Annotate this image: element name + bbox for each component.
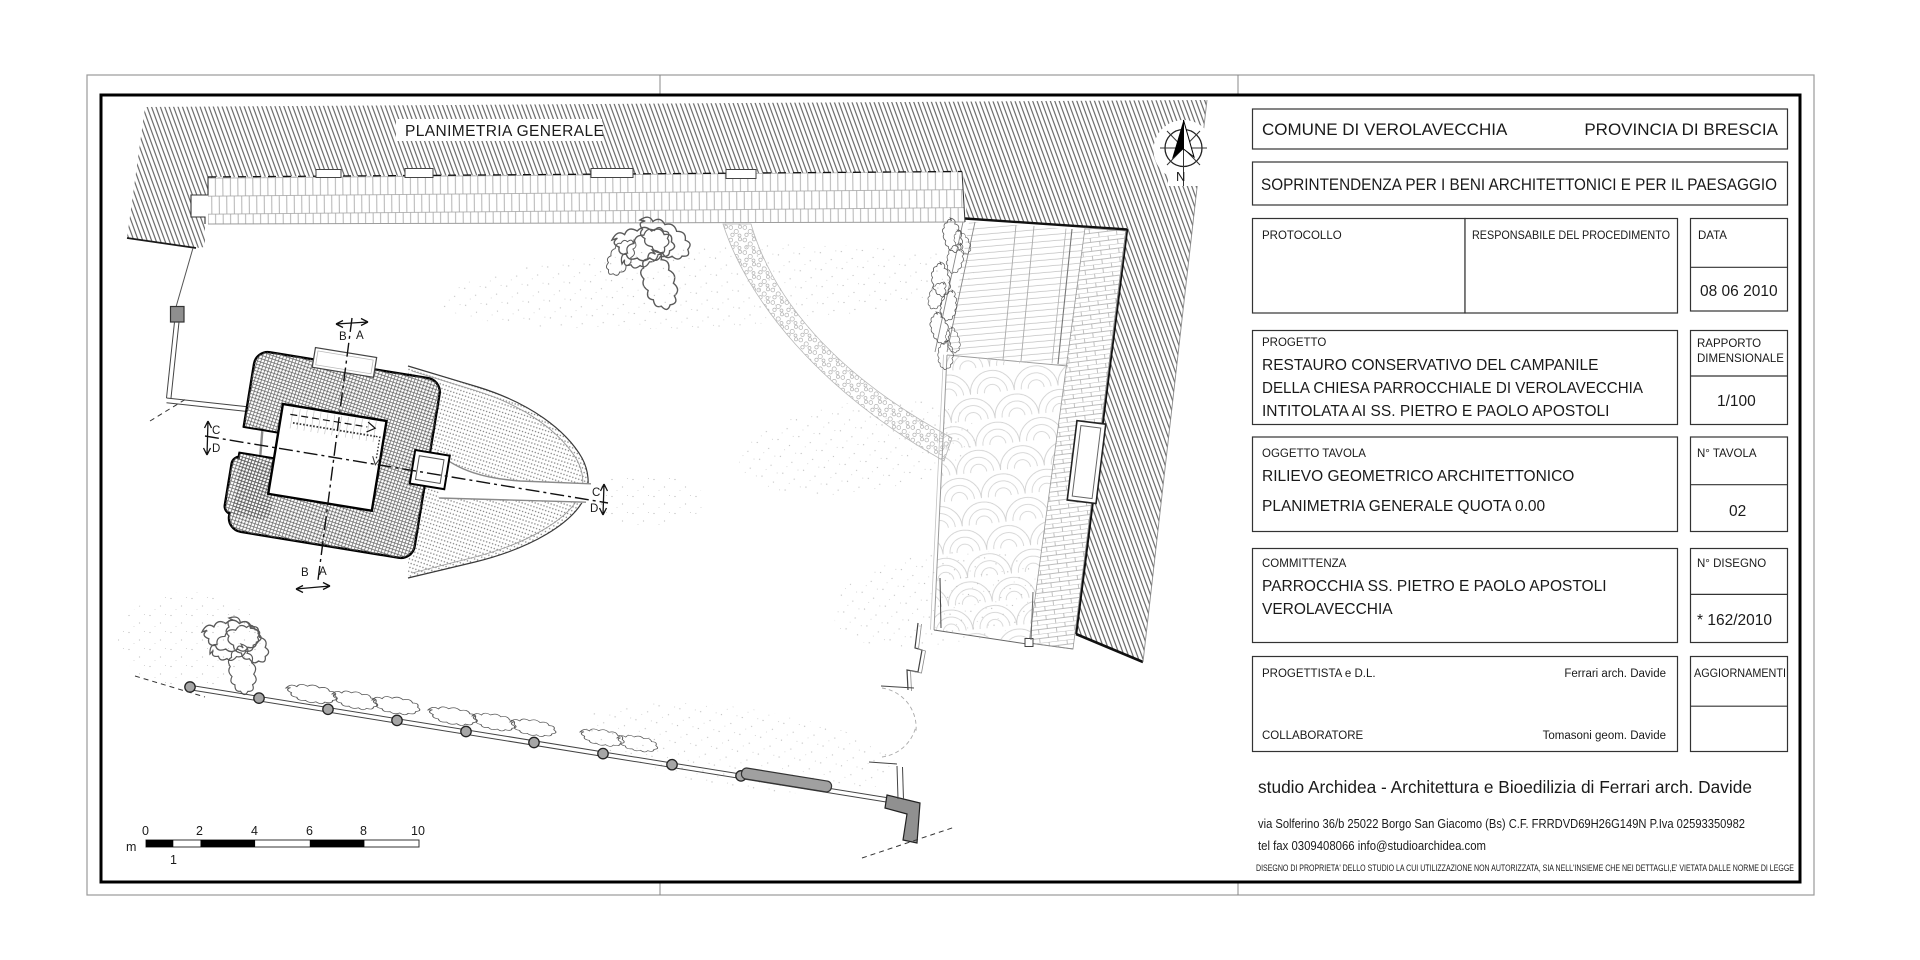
svg-text:4: 4 [251,824,258,838]
svg-text:DATA: DATA [1698,230,1727,242]
svg-text:D: D [590,503,598,515]
svg-text:A: A [356,330,364,342]
svg-text:2: 2 [196,824,203,838]
svg-text:studio Archidea - Architettura: studio Archidea - Architettura e Bioedil… [1258,777,1752,797]
svg-text:SOPRINTENDENZA PER I BENI ARCH: SOPRINTENDENZA PER I BENI ARCHITETTONICI… [1261,175,1777,194]
svg-text:PROGETTO: PROGETTO [1262,337,1326,349]
svg-text:08 06 2010: 08 06 2010 [1700,283,1778,300]
svg-text:COLLABORATORE: COLLABORATORE [1262,730,1364,742]
svg-text:N: N [1176,169,1185,184]
svg-text:tel fax 0309408066 info@stu: tel fax 0309408066 info@studioarchidea.c… [1258,839,1486,853]
svg-text:PROTOCOLLO: PROTOCOLLO [1262,230,1342,242]
svg-text:8: 8 [360,824,367,838]
svg-text:COMMITTENZA: COMMITTENZA [1262,558,1347,570]
svg-text:C: C [592,487,600,499]
svg-text:RESTAURO CONSERVATIVO DEL CAMP: RESTAURO CONSERVATIVO DEL CAMPANILE [1262,357,1598,374]
svg-text:VEROLAVECCHIA: VEROLAVECCHIA [1262,601,1393,618]
svg-text:Tomasoni geom. Davide: Tomasoni geom. Davide [1543,730,1666,742]
svg-text:D: D [212,443,220,455]
svg-text:DIMENSIONALE: DIMENSIONALE [1697,353,1784,365]
svg-text:* 162/2010: * 162/2010 [1697,612,1772,629]
svg-text:0: 0 [142,824,149,838]
svg-text:B: B [301,567,309,579]
svg-text:Ferrari arch. Davide: Ferrari arch. Davide [1564,668,1666,680]
svg-text:1: 1 [170,853,177,867]
svg-text:PROVINCIA DI BRESCIA: PROVINCIA DI BRESCIA [1584,120,1778,139]
svg-text:m: m [126,840,136,854]
svg-text:N° DISEGNO: N° DISEGNO [1697,558,1766,570]
svg-text:RAPPORTO: RAPPORTO [1697,338,1761,350]
svg-text:PLANIMETRIA GENERALE: PLANIMETRIA GENERALE [405,123,604,140]
svg-text:AGGIORNAMENTI: AGGIORNAMENTI [1694,668,1786,680]
svg-text:DISEGNO DI PROPRIETA' DELLO ST: DISEGNO DI PROPRIETA' DELLO STUDIO LA CU… [1256,863,1794,873]
svg-text:C: C [212,425,220,437]
svg-text:B: B [339,331,347,343]
svg-text:INTITOLATA AI SS. PIETRO E PAO: INTITOLATA AI SS. PIETRO E PAOLO APOSTOL… [1262,403,1609,420]
svg-text:COMUNE DI VEROLAVECCHIA: COMUNE DI VEROLAVECCHIA [1262,120,1508,139]
svg-text:A: A [319,566,327,578]
svg-text:02: 02 [1729,503,1746,520]
svg-text:RILIEVO GEOMETRICO ARCHITETTON: RILIEVO GEOMETRICO ARCHITETTONICO [1262,468,1574,485]
svg-text:10: 10 [411,824,425,838]
svg-text:1/100: 1/100 [1717,393,1756,410]
svg-text:PARROCCHIA SS. PIETRO E PAOLO: PARROCCHIA SS. PIETRO E PAOLO APOSTOLI [1262,578,1607,595]
svg-text:PLANIMETRIA GENERALE QUOTA 0.0: PLANIMETRIA GENERALE QUOTA 0.00 [1262,498,1545,515]
svg-text:OGGETTO TAVOLA: OGGETTO TAVOLA [1262,448,1366,460]
svg-text:RESPONSABILE DEL PROCEDIMENTO: RESPONSABILE DEL PROCEDIMENTO [1472,230,1670,242]
svg-text:via Solferino 36/b 25022 Bor: via Solferino 36/b 25022 Borgo San Giaco… [1258,817,1745,831]
svg-text:6: 6 [306,824,313,838]
svg-text:DELLA CHIESA PARROCCHIALE DI: DELLA CHIESA PARROCCHIALE DI VEROLAVECCH… [1262,380,1644,397]
svg-text:PROGETTISTA e D.L.: PROGETTISTA e D.L. [1262,668,1376,680]
svg-text:N° TAVOLA: N° TAVOLA [1697,448,1757,460]
